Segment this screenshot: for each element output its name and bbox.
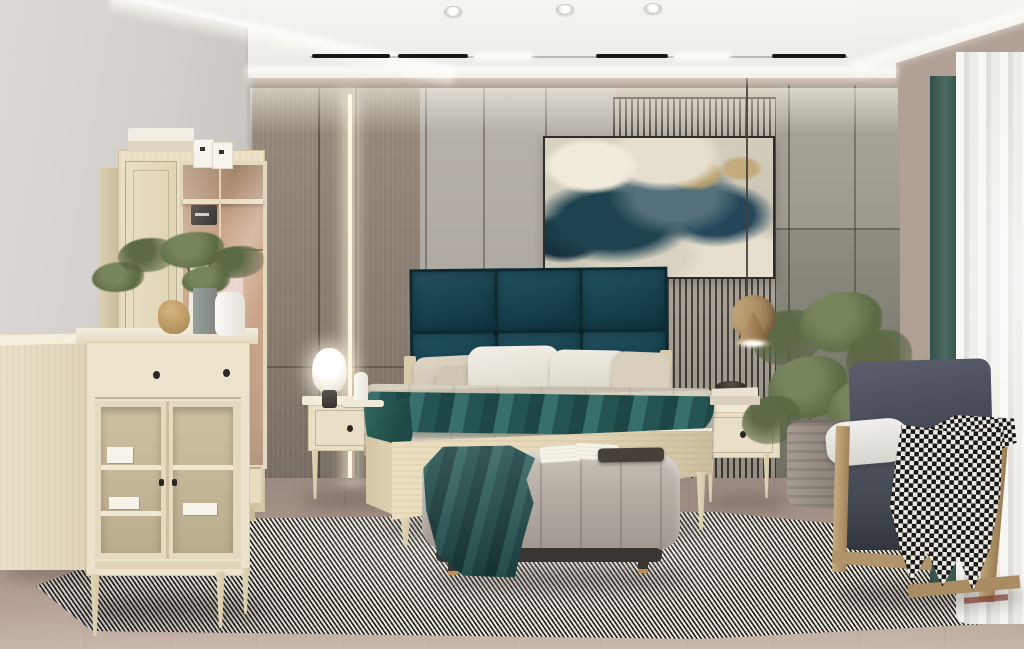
glass-door [173,407,233,553]
dresser-leg [214,572,227,628]
headboard-panel [412,271,495,330]
books [107,447,133,463]
books [109,497,139,509]
books [183,503,217,515]
panel-seam [776,228,900,230]
storage-box [212,142,233,169]
drawer-knob [347,425,353,432]
dresser-drawer [95,349,241,399]
headboard-panel [582,270,665,329]
storage-box [193,139,214,168]
vase [193,288,217,334]
nightstand-leg [310,449,320,499]
shelf [101,465,161,470]
door-divider [166,401,169,559]
pendant-glow [734,338,772,349]
recessed-spotlight [556,4,574,15]
track-light [596,54,668,58]
open-book [539,445,580,464]
bedroom-scene [0,0,1024,649]
wall-art [543,136,775,279]
jug [215,292,245,336]
storage-box-flat [128,128,194,152]
door-knob [172,479,177,486]
track-light [398,54,468,58]
bench-leg [638,558,648,573]
bed-side-rail [366,436,396,516]
drawer-knob [223,369,230,377]
shelf [173,465,233,470]
armchair [824,356,1024,606]
bench [416,444,688,580]
dresser [76,328,258,620]
nightstand-leg [762,454,771,498]
headboard-panel [497,271,580,330]
tray [342,400,384,407]
track-light [312,54,390,58]
shelf [101,511,161,516]
recessed-spotlight [644,3,662,14]
recessed-spotlight [444,6,462,17]
track-light-rail [310,56,848,58]
bench-tray [598,447,664,462]
dresser-rail [95,561,241,569]
track-light-lit [474,54,532,58]
table-lamp-base [322,390,337,408]
figurine [158,300,190,334]
tufting-button [579,328,585,334]
track-light [772,54,846,58]
cove-glow [246,66,898,88]
pendant-cord [746,60,748,298]
glass-door [101,407,161,553]
track-light-lit [674,54,730,58]
drawer-knob [153,371,160,379]
chair-foot-accent [964,594,1008,604]
table-lamp [312,348,347,394]
dresser-body [86,342,250,576]
door-knob [159,479,164,486]
dresser-glass-doors [95,401,241,559]
stacked-book [710,396,760,405]
cove-light-glow [250,88,898,134]
tufting-button [493,330,499,336]
bed-runner-teal [366,392,715,437]
